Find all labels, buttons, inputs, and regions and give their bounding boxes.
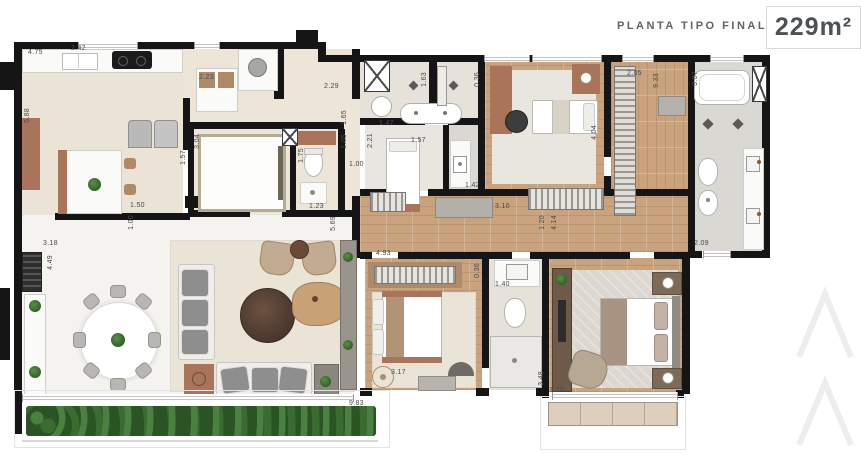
corridor-window bbox=[622, 55, 654, 62]
wall-corridor-bottom1 bbox=[360, 252, 372, 259]
dimension-label: 1.42 bbox=[465, 182, 480, 189]
sofa-cushion bbox=[182, 270, 208, 296]
closet-bench bbox=[658, 96, 686, 116]
plan-title: PLANTA TIPO FINAL 2 bbox=[617, 20, 767, 32]
master-toilet bbox=[698, 158, 718, 186]
servicebath-window bbox=[484, 55, 530, 62]
area-badge: 229m² bbox=[766, 6, 861, 49]
kitchen-counter bbox=[22, 49, 183, 73]
master-headboard bbox=[672, 296, 680, 368]
dimension-label: 3.07 bbox=[692, 71, 699, 86]
shaft-x bbox=[364, 60, 390, 92]
pantry-window bbox=[194, 42, 220, 49]
bed2-pillow bbox=[372, 329, 384, 355]
side-table-detail bbox=[192, 372, 206, 386]
kitchen-window bbox=[78, 42, 138, 49]
dining-chair bbox=[110, 285, 126, 298]
dimension-label: 3.17 bbox=[391, 369, 406, 376]
bedroom1-wardrobe bbox=[528, 188, 604, 210]
kitchen-sink bbox=[62, 53, 98, 70]
island-plant bbox=[88, 178, 101, 191]
tub-drain bbox=[414, 111, 418, 115]
dimension-label: 3.48 bbox=[538, 371, 545, 386]
dimension-label: 1.20 bbox=[539, 215, 546, 230]
dining-plant bbox=[111, 333, 125, 347]
kidney-table-detail bbox=[312, 296, 318, 302]
tv-console bbox=[340, 240, 357, 390]
dimension-label: 1.00 bbox=[128, 215, 135, 230]
bedroom1-window bbox=[532, 55, 602, 62]
wall-maid-servicebath bbox=[443, 125, 449, 191]
master-lamp bbox=[662, 277, 674, 289]
column-left-outer1 bbox=[0, 62, 14, 90]
living-terrace-doors bbox=[22, 394, 354, 402]
lavabo-toilet-tank bbox=[304, 148, 323, 155]
dimension-label: 4.93 bbox=[376, 250, 391, 257]
elevator-door bbox=[278, 146, 283, 200]
wall-master-right bbox=[682, 258, 690, 394]
dimension-label: 1.65 bbox=[341, 110, 348, 125]
island-stool bbox=[124, 184, 136, 195]
lavabo-shelf bbox=[298, 131, 336, 145]
dimension-label: 3.04 bbox=[194, 134, 201, 149]
counter-plant bbox=[29, 366, 41, 378]
wall-hall-bottom2 bbox=[282, 210, 353, 217]
dimension-label: 2.29 bbox=[324, 83, 339, 90]
dimension-label: 2.09 bbox=[694, 240, 709, 247]
bed2-pouf-dot bbox=[380, 374, 386, 380]
wall-corridor-bottom4 bbox=[654, 252, 688, 259]
dimension-label: 2.05 bbox=[627, 70, 642, 77]
wall-hall-bath bbox=[352, 49, 360, 99]
master-pillow bbox=[654, 302, 668, 330]
dimension-label: 1.57 bbox=[180, 150, 187, 165]
master-throw bbox=[601, 299, 627, 365]
sofa-cushion bbox=[182, 300, 208, 326]
bed2-headboard-panel bbox=[374, 266, 456, 284]
console-plant bbox=[343, 340, 353, 350]
dimension-label: 1.63 bbox=[421, 72, 428, 87]
coffee-maker bbox=[248, 58, 267, 77]
dimension-label: 2.23 bbox=[199, 74, 214, 81]
dimension-label: 1.23 bbox=[309, 203, 324, 210]
bath-niche bbox=[437, 66, 447, 106]
wall-top-left bbox=[14, 42, 318, 49]
servicebath-drain bbox=[458, 162, 462, 166]
dimension-label: 4.75 bbox=[28, 49, 43, 56]
bed2-throw bbox=[386, 297, 404, 357]
master-bidet bbox=[698, 190, 718, 216]
brand-chevron-icon bbox=[791, 376, 859, 448]
masterbath-window-top bbox=[710, 55, 744, 62]
bidet-faucet bbox=[706, 198, 710, 202]
dimension-label: 5.88 bbox=[24, 108, 31, 123]
counter-plant bbox=[29, 300, 41, 312]
dimension-label: 1.47 bbox=[379, 120, 394, 127]
dimension-label: 2.21 bbox=[367, 133, 374, 148]
dimension-label: 4.14 bbox=[551, 215, 558, 230]
column-top-outer bbox=[296, 30, 318, 43]
bedroom1-blanket bbox=[552, 100, 570, 134]
kitchen-tall-cabinet bbox=[22, 118, 40, 190]
bath2-basin bbox=[506, 264, 528, 280]
dining-chair bbox=[148, 332, 161, 348]
vanity-faucet bbox=[757, 212, 761, 216]
bedroom1-lamp bbox=[580, 72, 592, 84]
master-pillow bbox=[654, 334, 668, 362]
dimension-label: 3.70 bbox=[549, 387, 564, 394]
dimension-label: 1.05 bbox=[341, 134, 348, 149]
bath2-toilet bbox=[504, 298, 526, 328]
area-value: 229m² bbox=[775, 13, 852, 42]
dimension-label: 1.50 bbox=[130, 202, 145, 209]
round-side-table bbox=[290, 240, 309, 259]
vanity-faucet bbox=[757, 160, 761, 164]
cooktop-burner bbox=[118, 56, 128, 66]
dimension-label: 4.49 bbox=[47, 255, 54, 270]
wine-cooler bbox=[22, 252, 42, 292]
sofa-cushion bbox=[182, 330, 208, 354]
wall-left bbox=[14, 42, 22, 434]
wall-bedroom1-right2 bbox=[604, 176, 611, 192]
master-tv bbox=[558, 300, 566, 342]
master-closet bbox=[614, 66, 636, 216]
dimension-label: 4.04 bbox=[591, 125, 598, 140]
corridor-bench bbox=[435, 197, 493, 218]
dimension-label: 1.00 bbox=[349, 161, 364, 168]
dimension-label: 1.75 bbox=[298, 148, 305, 163]
wall-hung-sink bbox=[371, 96, 392, 117]
sofa-cushion bbox=[252, 368, 278, 392]
wall-corridor-bottom2 bbox=[398, 252, 512, 259]
wall-bath2-bottom-cap bbox=[536, 388, 549, 396]
console-plant bbox=[343, 252, 353, 262]
wall-bedroom1-right bbox=[604, 55, 611, 157]
kitchen-sink-divider bbox=[78, 53, 79, 68]
bedroom1-chair bbox=[505, 110, 528, 133]
terrace-railing bbox=[22, 440, 378, 442]
wall-bed2-bottom-cap2 bbox=[476, 388, 489, 396]
kitchen-island-side bbox=[58, 150, 67, 214]
dimension-label: 1.57 bbox=[411, 137, 426, 144]
dimension-label: 0.36 bbox=[474, 72, 481, 87]
masterbath-door-bottom bbox=[703, 251, 731, 258]
service-wardrobe bbox=[370, 192, 406, 212]
cooktop-burner bbox=[136, 56, 146, 66]
island-stool bbox=[124, 158, 136, 169]
pantry-basket bbox=[218, 72, 234, 88]
dimension-label: 5.69 bbox=[330, 216, 337, 231]
bath2-drain bbox=[512, 358, 517, 363]
dining-chair bbox=[73, 332, 86, 348]
dimension-label: 2.42 bbox=[71, 45, 86, 52]
shaft-x bbox=[282, 128, 298, 146]
dimension-label: 3.18 bbox=[43, 240, 58, 247]
dimension-label: 0.36 bbox=[474, 263, 481, 278]
master-console-plant bbox=[556, 274, 567, 285]
column-left-outer2 bbox=[0, 288, 10, 360]
vanity-sink bbox=[746, 208, 760, 224]
dimension-label: 3.10 bbox=[495, 203, 510, 210]
master-terrace-doors bbox=[552, 392, 678, 400]
dryer bbox=[154, 120, 178, 148]
vanity-sink bbox=[746, 156, 760, 172]
dimension-label: 9.83 bbox=[349, 400, 364, 407]
wall-masterbath-bottom2 bbox=[730, 251, 770, 258]
bathtub-inner bbox=[699, 74, 745, 101]
planter-hedge bbox=[26, 406, 376, 436]
master-terrace-tiles bbox=[548, 402, 678, 426]
washer bbox=[128, 120, 152, 148]
bed2-dresser bbox=[418, 376, 456, 391]
wall-above-elevator bbox=[188, 122, 344, 129]
coffee-table-round bbox=[240, 288, 295, 343]
dimension-label: 9.33 bbox=[653, 73, 660, 88]
double-trough-tub bbox=[400, 103, 462, 124]
master-lamp bbox=[662, 372, 674, 384]
bed2-pillow bbox=[372, 299, 384, 325]
shaft-x bbox=[752, 66, 767, 102]
floorplan-page: PLANTA TIPO FINAL 2 229m² bbox=[0, 0, 861, 456]
wall-kitchen-living bbox=[55, 213, 190, 220]
brand-chevron-icon bbox=[791, 286, 859, 360]
lavabo-sink-drain bbox=[310, 190, 315, 195]
dimension-label: 1.40 bbox=[495, 281, 510, 288]
elevator bbox=[198, 134, 286, 212]
tub-drain bbox=[443, 111, 447, 115]
wall-bed2-bath2 bbox=[482, 258, 489, 368]
side-table-plant bbox=[320, 376, 331, 387]
bed2-rail bbox=[382, 357, 442, 363]
